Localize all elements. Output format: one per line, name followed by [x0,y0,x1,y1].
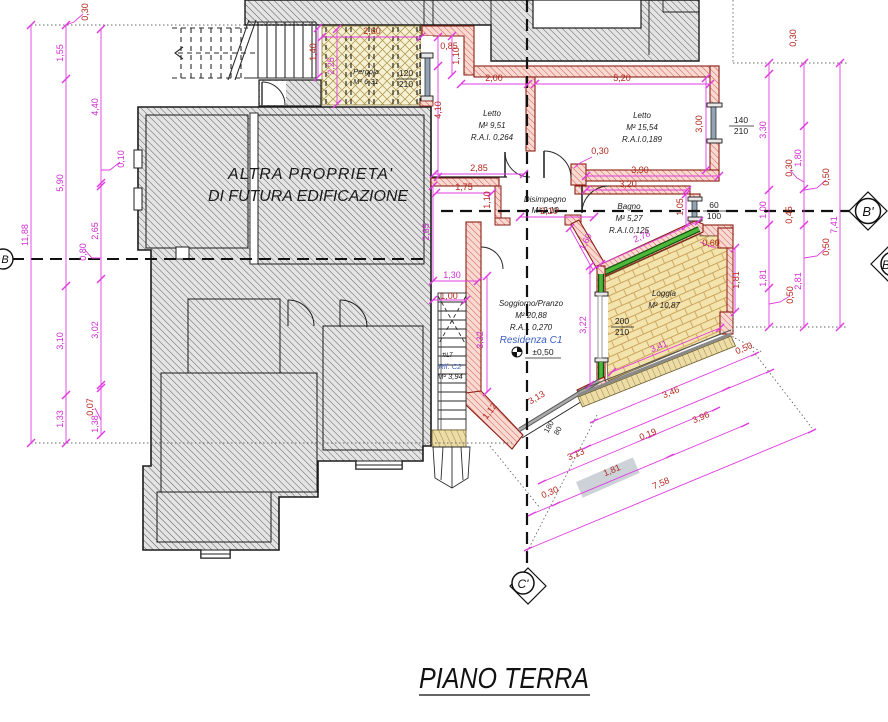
svg-text:0,50: 0,50 [821,168,831,186]
svg-text:3,30: 3,30 [758,121,768,139]
svg-text:1,05: 1,05 [675,198,685,216]
svg-text:B: B [882,258,888,272]
svg-text:0,45: 0,45 [784,206,794,224]
svg-text:2,65: 2,65 [90,222,100,240]
svg-text:C': C' [518,577,530,591]
svg-text:3,22: 3,22 [578,316,588,334]
svg-text:Letto: Letto [633,111,651,120]
svg-text:3,90: 3,90 [631,165,649,175]
svg-text:1,38: 1,38 [90,415,100,433]
svg-text:4,10: 4,10 [433,101,443,119]
svg-text:M² 3,94: M² 3,94 [437,372,462,381]
svg-text:3,00: 3,00 [694,115,704,133]
svg-text:210: 210 [399,79,413,89]
svg-text:1,00: 1,00 [758,201,768,219]
svg-text:Rif. C2: Rif. C2 [439,362,463,371]
svg-text:ALTRA PROPRIETA': ALTRA PROPRIETA' [227,166,393,183]
svg-text:M² 15,54: M² 15,54 [626,123,658,132]
svg-text:M² 2,10: M² 2,10 [531,206,559,215]
svg-text:0,07: 0,07 [85,398,95,416]
svg-text:0,10: 0,10 [116,150,126,168]
svg-text:3,02: 3,02 [90,321,100,339]
svg-text:⇅LT: ⇅LT [441,352,454,359]
svg-text:M² 5,27: M² 5,27 [615,214,643,223]
svg-text:1,81: 1,81 [758,269,768,287]
svg-text:210: 210 [734,126,748,136]
svg-text:Bagno: Bagno [617,202,641,211]
svg-text:5,90: 5,90 [55,174,65,192]
svg-text:5,20: 5,20 [613,73,631,83]
svg-text:3,10: 3,10 [55,332,65,350]
svg-text:PIANO TERRA: PIANO TERRA [419,663,589,695]
svg-text:1,75: 1,75 [455,182,473,192]
svg-text:2,85: 2,85 [470,163,488,173]
svg-text:0,80: 0,80 [78,243,88,261]
svg-text:±0,50: ±0,50 [532,347,553,357]
svg-text:Letto: Letto [483,109,501,118]
svg-text:140: 140 [734,115,748,125]
svg-text:4,40: 4,40 [90,98,100,116]
svg-text:0,30: 0,30 [591,146,609,156]
svg-text:Residenza C1: Residenza C1 [500,335,563,346]
svg-text:1,80: 1,80 [793,149,803,167]
svg-text:R.A.I.0,125: R.A.I.0,125 [609,226,650,235]
svg-text:1,00: 1,00 [440,291,458,301]
svg-text:B: B [1,254,8,266]
svg-text:1,40: 1,40 [308,43,318,61]
svg-text:120: 120 [399,68,413,78]
svg-text:Disimpegno: Disimpegno [524,195,567,204]
svg-text:11,88: 11,88 [20,224,30,246]
svg-text:0,60: 0,60 [702,238,720,248]
svg-text:0,30: 0,30 [80,3,90,21]
svg-text:60: 60 [709,200,719,210]
svg-text:2,25: 2,25 [326,57,336,75]
svg-text:2,00: 2,00 [485,73,503,83]
svg-text:R.A.I. 0,264: R.A.I. 0,264 [471,133,514,142]
svg-text:M² 10,87: M² 10,87 [648,301,680,310]
svg-text:1,30: 1,30 [443,270,461,280]
svg-text:210: 210 [615,327,629,337]
svg-text:0,30: 0,30 [784,159,794,177]
svg-text:Loggia: Loggia [652,289,677,298]
svg-text:R.A.I. 0,270: R.A.I. 0,270 [510,323,553,332]
svg-text:0,50: 0,50 [821,238,831,256]
svg-text:0,50: 0,50 [785,286,795,304]
svg-text:B': B' [862,204,874,219]
svg-text:200: 200 [615,316,629,326]
svg-text:1,55: 1,55 [55,44,65,62]
svg-text:M² 20,88: M² 20,88 [515,311,547,320]
svg-text:3,32: 3,32 [475,331,485,349]
svg-text:M² 6,31: M² 6,31 [353,77,378,86]
svg-text:1,10: 1,10 [451,47,461,65]
svg-text:7,41: 7,41 [829,216,839,234]
svg-text:Soggiorno/Pranzo: Soggiorno/Pranzo [499,299,564,308]
svg-text:1,10: 1,10 [482,191,492,209]
svg-text:R.A.I.0,189: R.A.I.0,189 [622,135,663,144]
svg-text:1,33: 1,33 [55,410,65,428]
svg-text:3,20: 3,20 [619,179,637,189]
svg-text:100: 100 [707,211,721,221]
svg-text:2,60: 2,60 [363,26,381,36]
svg-text:Pergola: Pergola [353,67,379,76]
svg-text:M² 9,51: M² 9,51 [478,121,505,130]
svg-text:DI FUTURA EDIFICAZIONE: DI FUTURA EDIFICAZIONE [208,188,408,205]
svg-text:0,30: 0,30 [788,29,798,47]
svg-text:1,81: 1,81 [731,271,741,289]
svg-text:2,65: 2,65 [421,223,431,241]
